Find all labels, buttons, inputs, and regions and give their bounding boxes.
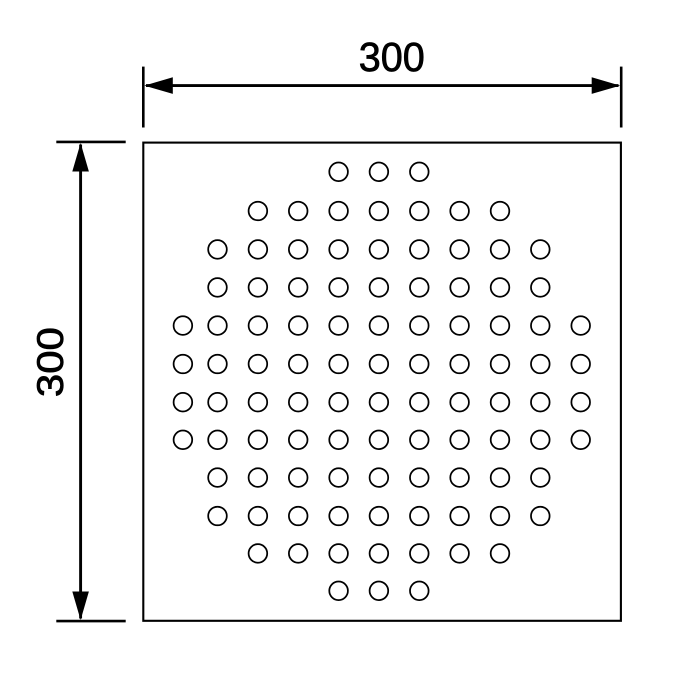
- svg-text:300: 300: [359, 34, 425, 80]
- svg-text:300: 300: [29, 327, 71, 397]
